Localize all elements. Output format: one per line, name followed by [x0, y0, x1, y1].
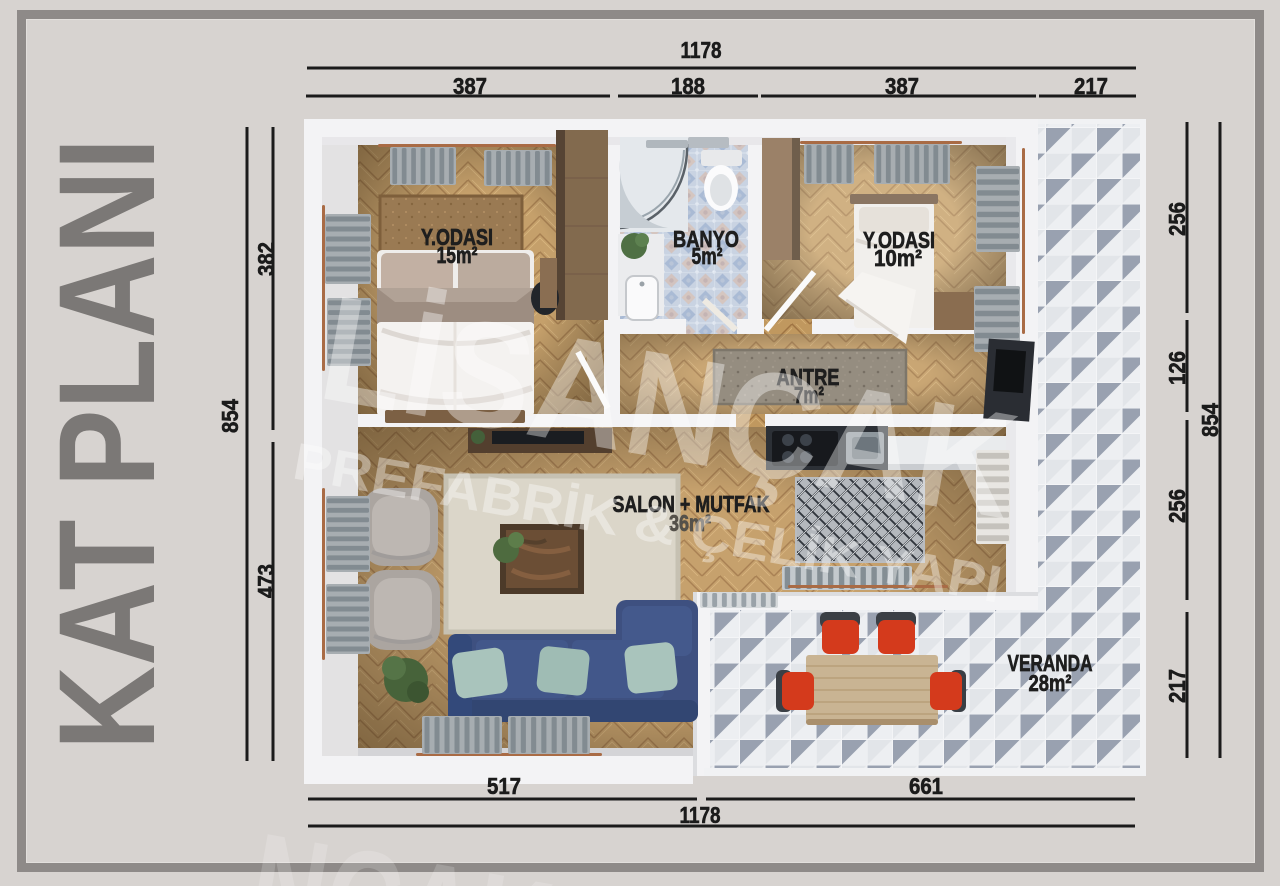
svg-text:126: 126 — [1164, 351, 1190, 385]
svg-text:387: 387 — [453, 73, 487, 99]
svg-text:256: 256 — [1164, 202, 1190, 236]
svg-text:517: 517 — [487, 773, 521, 799]
svg-text:217: 217 — [1164, 669, 1190, 703]
svg-text:28m²: 28m² — [1029, 670, 1072, 696]
svg-text:10m²: 10m² — [874, 245, 922, 271]
svg-text:188: 188 — [671, 73, 705, 99]
svg-text:1178: 1178 — [680, 802, 721, 828]
svg-text:256: 256 — [1164, 489, 1190, 523]
svg-text:15m²: 15m² — [437, 242, 478, 268]
svg-text:661: 661 — [909, 773, 943, 799]
svg-text:5m²: 5m² — [692, 243, 723, 269]
svg-text:387: 387 — [885, 73, 919, 99]
svg-text:854: 854 — [217, 399, 243, 433]
svg-text:854: 854 — [1197, 403, 1223, 437]
svg-text:473: 473 — [253, 564, 279, 598]
svg-text:KAT PLANI: KAT PLANI — [31, 138, 184, 750]
svg-text:382: 382 — [253, 242, 279, 276]
svg-text:1178: 1178 — [681, 37, 722, 63]
svg-text:217: 217 — [1074, 73, 1108, 99]
